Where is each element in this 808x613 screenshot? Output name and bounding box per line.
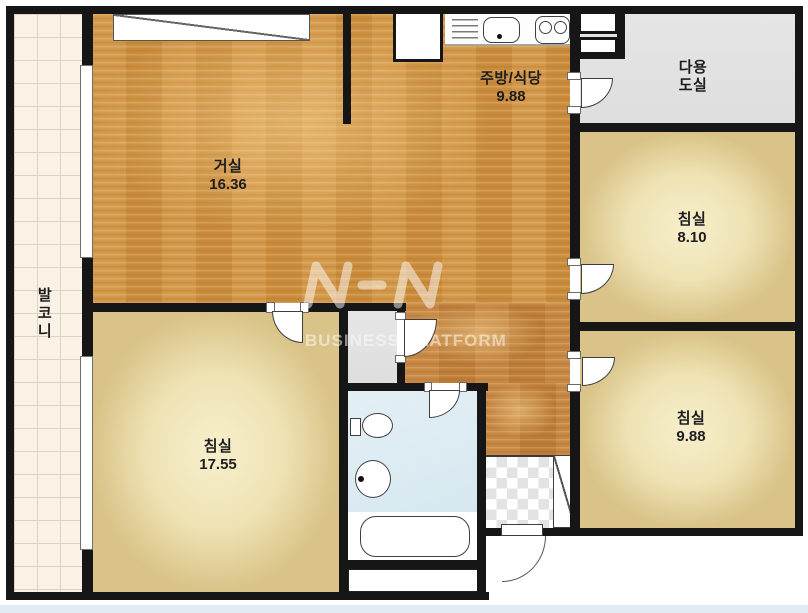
stove-burner-icon	[554, 21, 567, 34]
entrance-door-swing	[502, 536, 546, 582]
page-shadow	[0, 605, 808, 613]
door-jamb	[567, 258, 581, 266]
room-area: 9.88	[480, 88, 542, 106]
room-area: 8.10	[677, 229, 706, 247]
window	[80, 356, 93, 550]
entrance-tile-floor	[486, 455, 553, 530]
room-label-living: 거실 16.36	[209, 140, 247, 212]
wall	[570, 123, 803, 132]
wall	[339, 383, 429, 391]
door-jamb	[567, 72, 581, 80]
wall	[82, 303, 274, 312]
watermark: BUSINESS PLATFORM	[278, 258, 543, 358]
window	[80, 65, 93, 258]
wall	[6, 592, 489, 600]
bathtub	[360, 516, 470, 557]
room-label-balcony: 발 코 니	[38, 269, 52, 341]
wall	[339, 560, 486, 569]
wall	[795, 6, 803, 536]
entrance-door-leaf	[501, 524, 543, 536]
wall	[570, 528, 803, 536]
door-jamb	[567, 351, 581, 359]
toilet-tank	[350, 418, 361, 436]
wall	[578, 52, 625, 59]
room-area: 9.88	[676, 428, 705, 446]
room-name: 다용 도실	[679, 59, 708, 94]
wall	[570, 322, 803, 331]
door-jamb	[567, 292, 581, 300]
door-jamb	[459, 382, 467, 392]
wall	[570, 109, 580, 263]
toilet-bowl	[362, 413, 393, 438]
wall	[82, 548, 93, 594]
room-name: 침실	[677, 410, 706, 427]
floor-plan: 거실 16.36 주방/식당 9.88 다용 도실 침실 8.10 침실 9.8…	[0, 0, 808, 613]
door-jamb	[567, 384, 581, 392]
stove-burner-icon	[539, 21, 552, 34]
room-name: 거실	[214, 158, 243, 175]
washer-space	[347, 568, 481, 593]
room-name: 침실	[204, 438, 233, 455]
wall	[570, 388, 580, 528]
refrigerator-box	[393, 10, 443, 62]
room-area: 17.55	[199, 456, 237, 474]
room-name: 침실	[678, 211, 707, 228]
room-name: 주방/식당	[480, 70, 542, 87]
wall	[570, 6, 580, 77]
hallway-floor	[486, 383, 570, 455]
washbasin-drain-dot	[358, 476, 364, 482]
room-area: 16.36	[209, 176, 247, 194]
wall	[543, 528, 578, 536]
door-jamb	[567, 106, 581, 114]
room-label-utility: 다용 도실	[679, 41, 708, 95]
kitchen-sink	[483, 17, 520, 43]
room-label-bedroom-810: 침실 8.10	[677, 193, 706, 265]
wall	[6, 6, 803, 14]
nhn-logo-icon	[308, 266, 438, 304]
wall	[6, 6, 14, 600]
watermark-text: BUSINESS PLATFORM	[305, 331, 507, 350]
wardrobe	[113, 14, 310, 41]
wall	[82, 12, 93, 68]
dish-rack-icon	[452, 19, 478, 40]
wall	[617, 6, 625, 58]
room-label-bedroom-17: 침실 17.55	[199, 420, 237, 492]
sink-drain-dot	[497, 34, 502, 39]
room-label-bedroom-988: 침실 9.88	[676, 392, 705, 464]
room-label-kitchen: 주방/식당 9.88	[480, 52, 542, 124]
room-name: 발 코 니	[38, 287, 52, 340]
wall	[343, 14, 351, 124]
